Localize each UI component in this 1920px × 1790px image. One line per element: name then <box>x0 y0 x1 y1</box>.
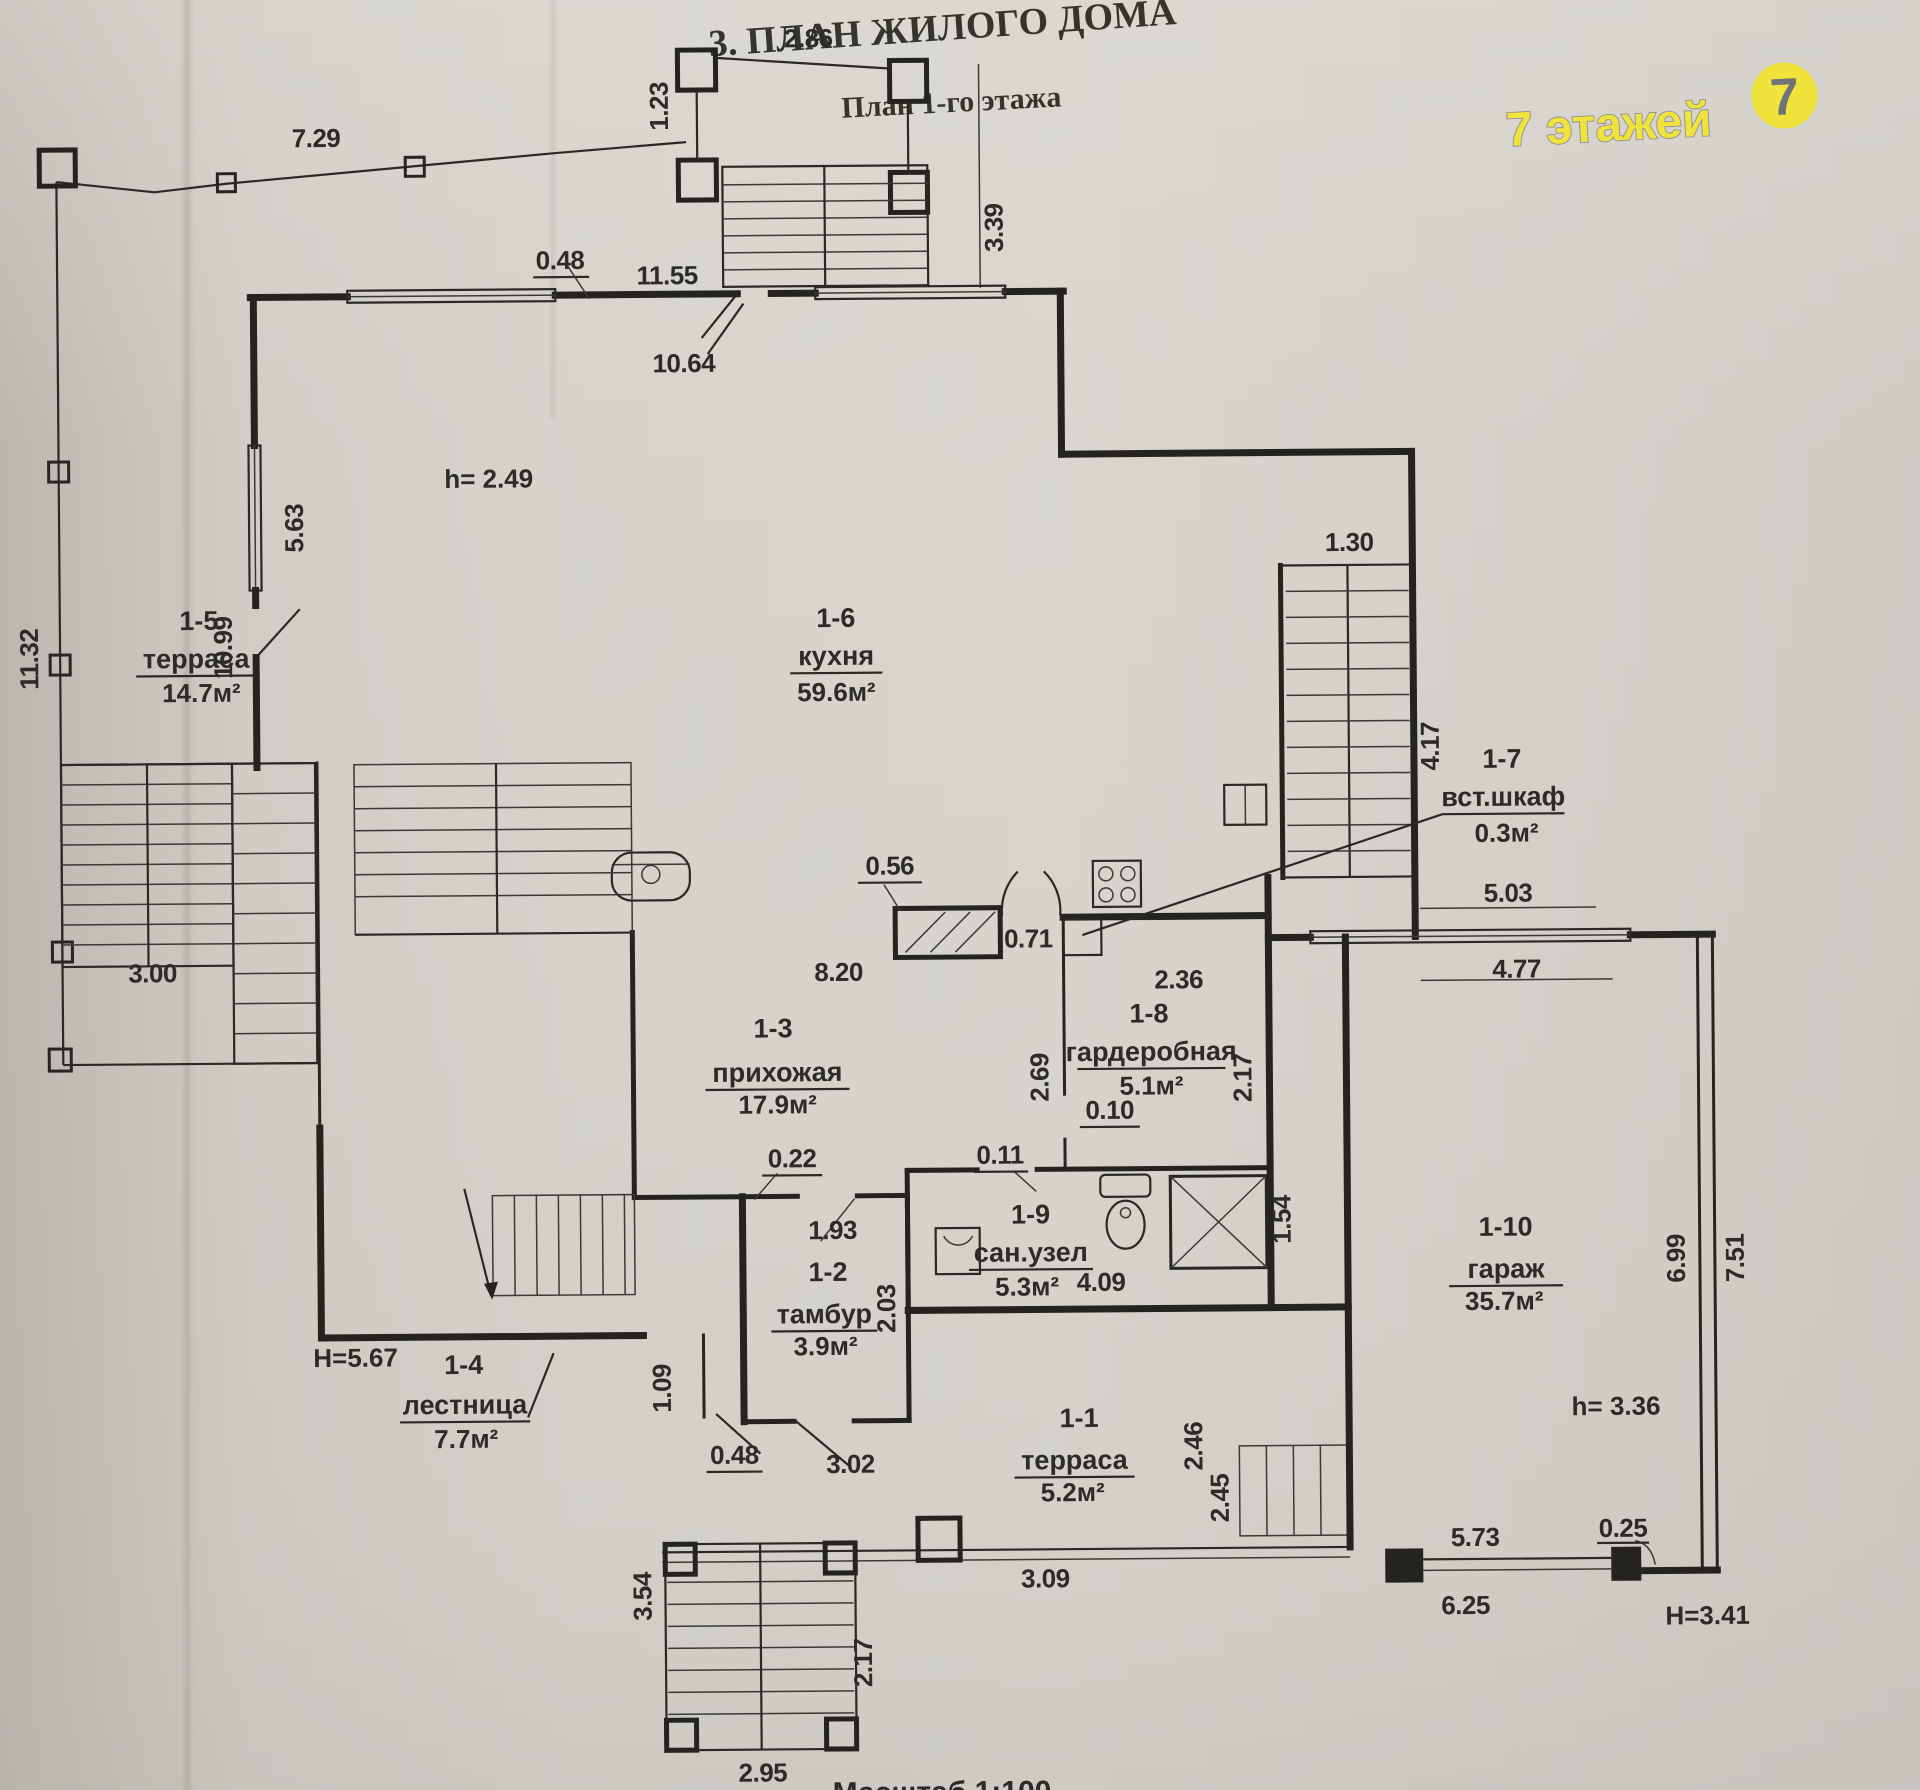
room-id: 1-1 <box>1059 1403 1098 1433</box>
dim-terrace1-width: 3.09 <box>1021 1563 1070 1593</box>
floorplan-canvas: 3. ПЛАН ЖИЛОГО ДОМА План 1-го этажа <box>0 0 1920 1790</box>
room-area: 3.9м² <box>793 1331 858 1362</box>
dim-top-terrace-depth: 3.39 <box>979 203 1009 252</box>
dim-garage-front: 6.25 <box>1441 1590 1490 1620</box>
dim-tambour-gap: 1.09 <box>647 1364 677 1413</box>
dim-garage-depth-in: 6.99 <box>1661 1234 1691 1283</box>
dim-kitchen-height: h= 2.49 <box>444 463 533 494</box>
room-area: 5.3м² <box>995 1271 1060 1302</box>
dim-stair-total-height: H=5.67 <box>313 1342 398 1373</box>
dim-kitchen-top-inner: 10.64 <box>652 348 716 378</box>
room-id: 1-9 <box>1011 1199 1050 1229</box>
dim-top-wall-offset: 0.48 <box>536 245 585 275</box>
room-id: 1-4 <box>444 1350 483 1380</box>
room-name: гардеробная <box>1066 1036 1237 1067</box>
room-name: сан.узел <box>974 1237 1088 1268</box>
room-id: 1-5 <box>179 606 218 636</box>
dim-garage-gate-height: H=3.41 <box>1665 1600 1750 1631</box>
dim-tambour-depth: 2.03 <box>871 1284 901 1333</box>
dim-left-fence-top: 7.29 <box>292 123 341 153</box>
dim-tambour-front: 3.02 <box>826 1449 875 1479</box>
room-name: лестница <box>403 1389 529 1420</box>
room-name: прихожая <box>712 1057 842 1088</box>
dim-terrace1-side: 2.46 <box>1178 1422 1208 1471</box>
dim-hall-opening: 8.20 <box>814 957 863 987</box>
dim-top-terrace-width: 2.86 <box>784 23 833 53</box>
room-area: 17.9м² <box>738 1089 817 1120</box>
dim-left-fence-height: 11.32 <box>14 629 44 690</box>
room-name: вст.шкаф <box>1441 781 1565 812</box>
dim-right-stairs-length: 4.17 <box>1415 722 1445 771</box>
dim-wardrobe-width: 2.36 <box>1154 964 1203 994</box>
room-area: 7.7м² <box>434 1424 499 1455</box>
dim-terrace1-side2: 2.45 <box>1205 1474 1235 1523</box>
room-name: гараж <box>1467 1253 1545 1284</box>
room-area: 35.7м² <box>1465 1285 1544 1316</box>
dim-tambour-width: 1.93 <box>808 1215 857 1245</box>
floorplan-scan-page: 3. ПЛАН ЖИЛОГО ДОМА План 1-го этажа <box>0 0 1920 1790</box>
dim-garage-gate-tick: 0.25 <box>1599 1513 1648 1543</box>
room-name: кухня <box>798 641 874 672</box>
dim-garage-window-in: 4.77 <box>1492 953 1541 983</box>
room-id: 1-10 <box>1478 1212 1532 1242</box>
brand-badge-7-icon: 7 <box>1769 68 1801 127</box>
dim-bottom-steps-side: 3.54 <box>627 1571 657 1621</box>
room-area: 5.2м² <box>1041 1477 1106 1508</box>
dim-shower-size: 1.54 <box>1266 1194 1296 1244</box>
dim-top-terrace-side: 1.23 <box>644 82 674 131</box>
dim-garage-window-out: 5.03 <box>1484 878 1533 908</box>
room-id: 1-6 <box>816 603 855 633</box>
scale-note: Масштаб 1:100 <box>833 1775 1052 1790</box>
dim-kitchen-door: 0.71 <box>1004 923 1053 953</box>
dim-wardrobe-left: 2.69 <box>1024 1053 1054 1102</box>
dim-left-wall-window: 5.63 <box>279 504 309 553</box>
room-id: 1-7 <box>1482 744 1521 774</box>
dim-bath-door: 0.11 <box>976 1140 1023 1170</box>
dim-bath-width: 4.09 <box>1077 1267 1126 1297</box>
dim-tambour-tick: 0.22 <box>768 1143 817 1173</box>
room-id: 1-2 <box>808 1257 847 1287</box>
room-area: 14.7м² <box>162 678 241 709</box>
dim-garage-depth-out: 7.51 <box>1720 1233 1750 1282</box>
dim-bottom-steps-width: 2.95 <box>738 1757 787 1787</box>
dim-right-stairs-width: 1.30 <box>1325 527 1374 557</box>
dim-garage-height: h= 3.36 <box>1571 1391 1660 1422</box>
dim-kitchen-pier-offset: 0.56 <box>865 850 914 880</box>
room-area: 5.1м² <box>1119 1070 1184 1101</box>
dim-top-wall-length: 11.55 <box>636 260 697 290</box>
room-name: тамбур <box>776 1299 872 1330</box>
room-id: 1-8 <box>1129 998 1168 1028</box>
dim-bottom-steps-right: 2.17 <box>848 1638 878 1687</box>
dim-garage-gate-width: 5.73 <box>1451 1522 1500 1552</box>
room-name: терраса <box>143 644 251 675</box>
dim-tambour-door: 0.48 <box>710 1440 759 1470</box>
room-area: 59.6м² <box>797 677 876 708</box>
room-area: 0.3м² <box>1474 817 1539 848</box>
brand-watermark-text: 7 этажей <box>1505 93 1713 157</box>
room-id: 1-3 <box>753 1013 792 1043</box>
room-name: терраса <box>1021 1445 1129 1476</box>
dim-left-steps-width: 3.00 <box>128 958 177 988</box>
